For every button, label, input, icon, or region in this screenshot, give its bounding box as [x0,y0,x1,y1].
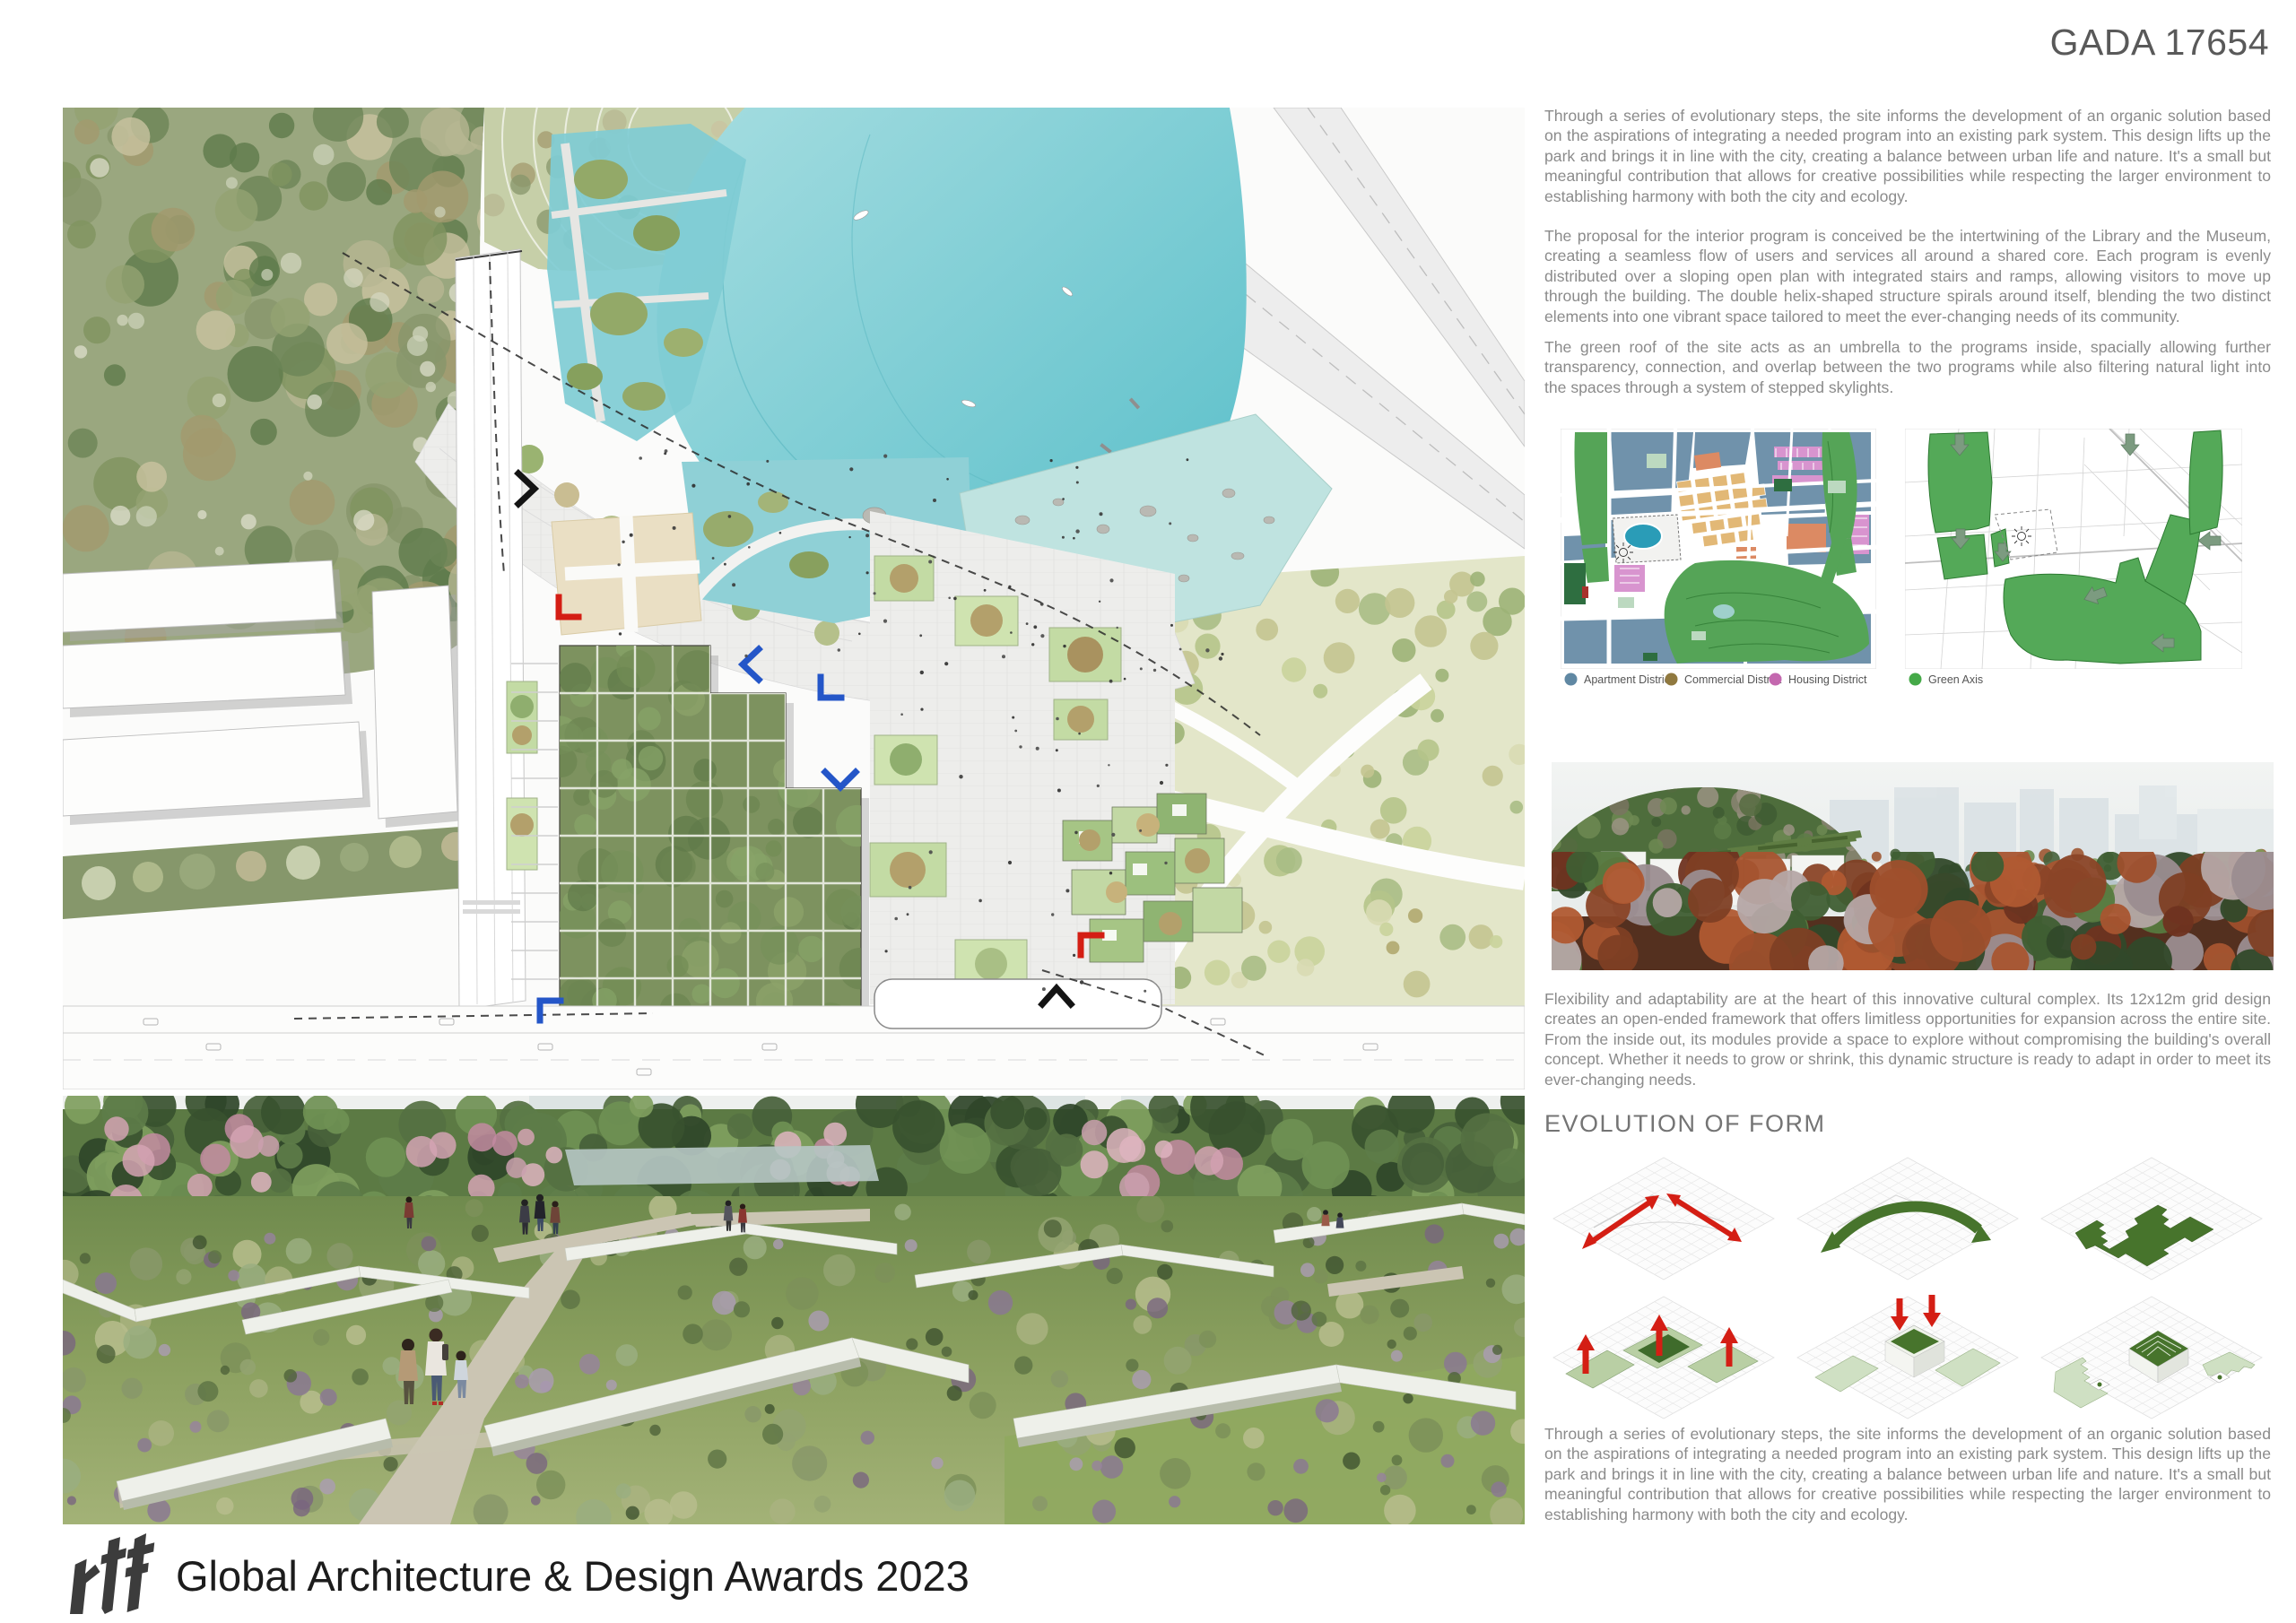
evolution-step-green-flow-arrow [1788,1150,2027,1285]
legend-item-green-axis: Green Axis [1909,673,1983,686]
legend-dot-commercial [1665,673,1678,686]
outro-paragraph: Through a series of evolutionary steps, … [1544,1424,2271,1524]
legend-dot-green-axis [1909,673,1922,686]
flexibility-paragraph: Flexibility and adaptability are at the … [1544,989,2271,1089]
legend-item-commercial: Commercial District [1665,673,1781,686]
district-plan-map [1561,429,1876,669]
bus-stop [874,979,1161,1028]
green-roof-paragraph: The green roof of the site acts as an um… [1544,337,2271,397]
intro-paragraph: Through a series of evolutionary steps, … [1544,106,2271,206]
legend-dot-housing [1769,673,1782,686]
map-legend: Apartment District Commercial District H… [1543,673,2271,696]
evolution-heading: EVOLUTION OF FORM [1544,1110,1826,1138]
legend-item-apartment: Apartment District [1564,673,1673,686]
site-plan-drawing [63,108,1525,1089]
park-context-render [1552,762,2274,970]
green-axis-map [1905,429,2242,669]
awards-title: Global Architecture & Design Awards 2023 [176,1551,970,1601]
evolution-step-stepped-footprint [2032,1150,2271,1285]
pond-glimpse [565,1145,879,1185]
rtf-logo [66,1532,161,1614]
evolution-step-press-center-volume [1788,1289,2027,1424]
legend-dot-apartment [1564,673,1578,686]
green-roof-render [63,1096,1525,1524]
site-marker-area [1613,515,1681,563]
evolution-step-site-axes-arrows [1544,1150,1783,1285]
legend-item-housing: Housing District [1769,673,1867,686]
board-code: GADA 17654 [2050,22,2269,64]
main-street [456,249,526,1010]
competition-board: GADA 17654 [0,0,2296,1623]
city-blocks [63,560,493,919]
evolution-step-final-stepped-massing [2032,1289,2271,1424]
program-paragraph: The proposal for the interior program is… [1544,226,2271,326]
evolution-step-lift-roof-plates [1544,1289,1783,1424]
